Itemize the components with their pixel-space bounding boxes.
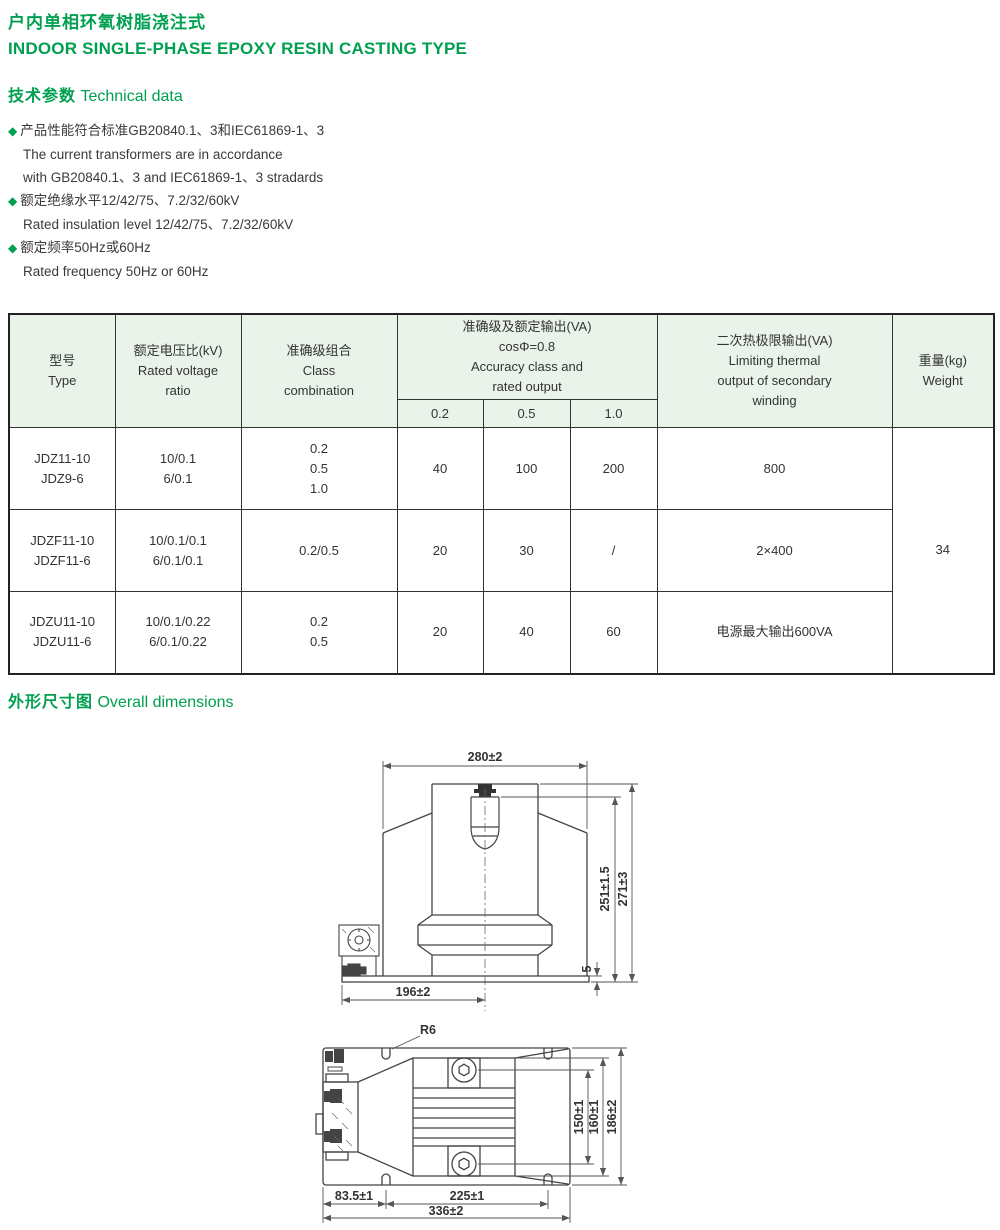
feature-text: 额定频率50Hz或60Hz — [20, 240, 151, 255]
col-header-thermal: 二次热极限输出(VA)Limiting thermaloutput of sec… — [657, 314, 892, 428]
section-heading-dimensions-zh: 外形尺寸图 — [8, 694, 93, 711]
feature-text: 额定绝缘水平12/42/75、7.2/32/60kV — [20, 193, 239, 208]
col-header-accuracy: 准确级及额定输出(VA)cosΦ=0.8Accuracy class andra… — [397, 314, 657, 400]
cell-type: JDZU11-10JDZU11-6 — [9, 592, 115, 674]
dim-label-width-top: 280±2 — [468, 750, 503, 764]
dim-label-base-plate: 5 — [580, 965, 594, 972]
cell-va02: 20 — [397, 510, 483, 592]
table-row: JDZU11-10JDZU11-6 10/0.1/0.226/0.1/0.22 … — [9, 592, 994, 674]
feature-item: ◆额定绝缘水平12/42/75、7.2/32/60kV — [8, 189, 324, 213]
cell-voltage: 10/0.1/0.16/0.1/0.1 — [115, 510, 241, 592]
diamond-bullet-icon: ◆ — [8, 194, 17, 208]
dim-label-overall-width: 336±2 — [429, 1204, 464, 1218]
cell-class: 0.2/0.5 — [241, 510, 397, 592]
dim-label-boss-span: 150±1 — [572, 1100, 586, 1135]
table-row: JDZF11-10JDZF11-6 10/0.1/0.16/0.1/0.1 0.… — [9, 510, 994, 592]
dim-label-body-height: 160±1 — [587, 1100, 601, 1135]
col-header-weight: 重量(kg)Weight — [892, 314, 994, 428]
feature-text: Rated insulation level 12/42/75、7.2/32/6… — [8, 213, 324, 236]
cell-va10: 60 — [570, 592, 657, 674]
col-subheader-0p2: 0.2 — [397, 400, 483, 428]
section-heading-dimensions: 外形尺寸图 Overall dimensions — [8, 688, 234, 712]
section-heading-technical-zh: 技术参数 — [8, 88, 76, 105]
col-header-class: 准确级组合Classcombination — [241, 314, 397, 428]
dim-label-base-width: 196±2 — [396, 985, 431, 999]
cell-thermal: 2×400 — [657, 510, 892, 592]
col-header-voltage: 额定电压比(kV)Rated voltageratio — [115, 314, 241, 428]
catalog-page: 户内单相环氧树脂浇注式 INDOOR SINGLE-PHASE EPOXY RE… — [0, 0, 1000, 1230]
page-title-en: INDOOR SINGLE-PHASE EPOXY RESIN CASTING … — [8, 38, 467, 61]
cell-thermal: 800 — [657, 428, 892, 510]
secondary-terminal-box — [339, 925, 379, 976]
cell-type: JDZ11-10JDZ9-6 — [9, 428, 115, 510]
diamond-bullet-icon: ◆ — [8, 124, 17, 138]
section-heading-technical: 技术参数 Technical data — [8, 82, 183, 106]
cell-va10: / — [570, 510, 657, 592]
cell-class: 0.20.51.0 — [241, 428, 397, 510]
cell-type: JDZF11-10JDZF11-6 — [9, 510, 115, 592]
title-block: 户内单相环氧树脂浇注式 INDOOR SINGLE-PHASE EPOXY RE… — [8, 12, 467, 61]
col-subheader-0p5: 0.5 — [483, 400, 570, 428]
cell-weight: 34 — [892, 428, 994, 674]
feature-text: 产品性能符合标准GB20840.1、3和IEC61869-1、3 — [20, 123, 324, 138]
cell-va02: 40 — [397, 428, 483, 510]
table-row: JDZ11-10JDZ9-6 10/0.16/0.1 0.20.51.0 40 … — [9, 428, 994, 510]
front-view-drawing: 280±2 196±2 251±1.5 271±3 5 — [280, 733, 700, 1025]
col-header-type: 型号Type — [9, 314, 115, 428]
feature-list: ◆产品性能符合标准GB20840.1、3和IEC61869-1、3 The cu… — [8, 119, 324, 283]
spec-table: 型号Type 额定电压比(kV)Rated voltageratio 准确级组合… — [8, 313, 995, 675]
cell-va10: 200 — [570, 428, 657, 510]
page-title-zh: 户内单相环氧树脂浇注式 — [8, 12, 467, 35]
cell-va02: 20 — [397, 592, 483, 674]
cell-va05: 40 — [483, 592, 570, 674]
feature-item: ◆额定频率50Hz或60Hz — [8, 236, 324, 260]
feature-text: with GB20840.1、3 and IEC61869-1、3 strada… — [8, 166, 324, 189]
section-heading-technical-en: Technical data — [80, 88, 182, 105]
dim-label-height-outer: 271±3 — [616, 872, 630, 907]
dim-label-slot-span: 225±1 — [450, 1189, 485, 1203]
cell-class: 0.20.5 — [241, 592, 397, 674]
col-subheader-1p0: 1.0 — [570, 400, 657, 428]
cell-va05: 100 — [483, 428, 570, 510]
cell-va05: 30 — [483, 510, 570, 592]
cell-voltage: 10/0.1/0.226/0.1/0.22 — [115, 592, 241, 674]
section-heading-dimensions-en: Overall dimensions — [97, 694, 233, 711]
top-view-drawing: R6 150±1 160±1 186±2 83.5±1 225±1 336±2 — [288, 1018, 708, 1230]
dim-label-edge-to-slot: 83.5±1 — [335, 1189, 373, 1203]
diamond-bullet-icon: ◆ — [8, 241, 17, 255]
cell-voltage: 10/0.16/0.1 — [115, 428, 241, 510]
cell-thermal: 电源最大输出600VA — [657, 592, 892, 674]
dim-label-height-inner: 251±1.5 — [598, 866, 612, 911]
feature-item: ◆产品性能符合标准GB20840.1、3和IEC61869-1、3 — [8, 119, 324, 143]
feature-text: The current transformers are in accordan… — [8, 143, 324, 166]
feature-text: Rated frequency 50Hz or 60Hz — [8, 260, 324, 283]
dim-label-fillet: R6 — [420, 1023, 436, 1037]
dim-label-overall-height: 186±2 — [605, 1100, 619, 1135]
top-view-bolts — [324, 1049, 352, 1151]
